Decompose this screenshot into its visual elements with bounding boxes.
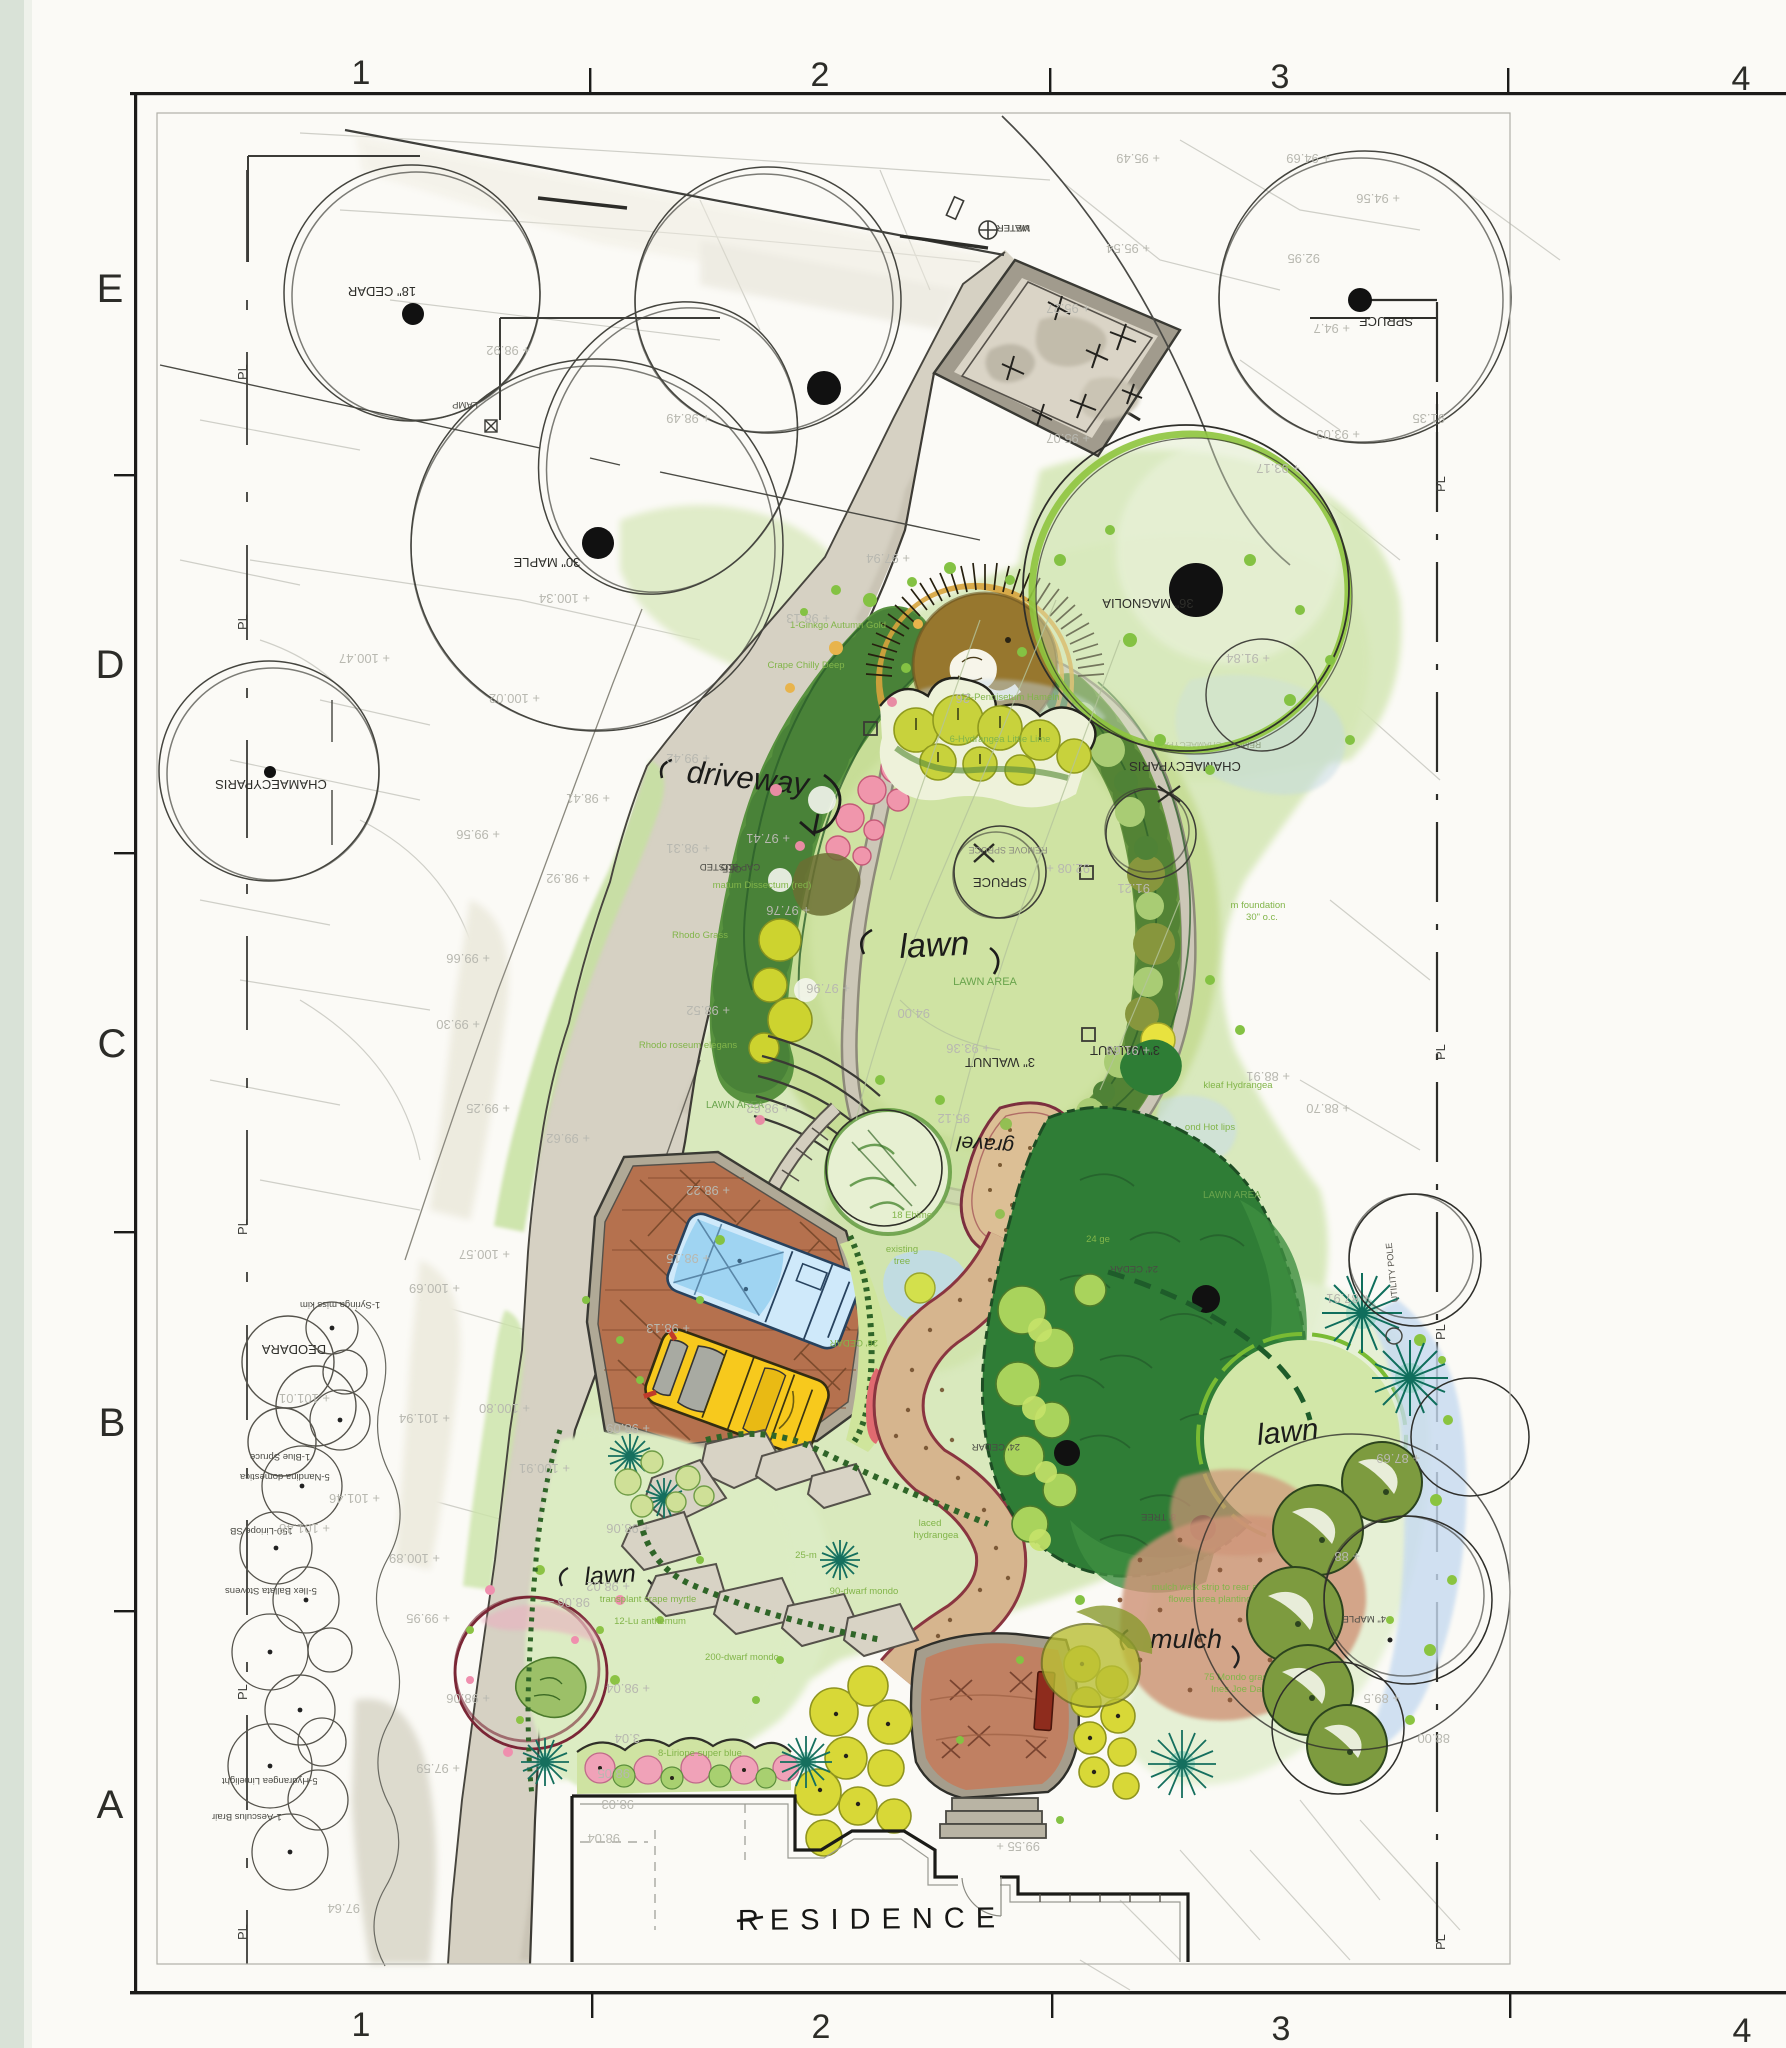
svg-text:PL: PL bbox=[1433, 1324, 1448, 1340]
svg-text:+ 98.13: + 98.13 bbox=[786, 611, 830, 626]
svg-text:1: 1 bbox=[352, 2006, 371, 2044]
svg-text:A: A bbox=[97, 1783, 124, 1827]
svg-text:LAWN AREA: LAWN AREA bbox=[1203, 1190, 1261, 1201]
svg-text:26: 26 bbox=[956, 691, 970, 706]
svg-text:Rhodo roseum elegans: Rhodo roseum elegans bbox=[639, 1040, 737, 1051]
svg-text:+ 87.91: + 87.91 bbox=[1326, 1291, 1370, 1306]
svg-text:E: E bbox=[97, 267, 124, 311]
svg-text:98.03: 98.03 bbox=[601, 1797, 634, 1812]
svg-text:3: 3 bbox=[1271, 58, 1290, 96]
svg-text:+ 101.01: + 101.01 bbox=[279, 1391, 330, 1406]
svg-text:+ 99.56: + 99.56 bbox=[456, 827, 500, 842]
svg-text:5-Ilex Ballata Stovens: 5-Ilex Ballata Stovens bbox=[225, 1585, 317, 1596]
svg-text:30" o.c.: 30" o.c. bbox=[1246, 912, 1278, 923]
svg-text:transplant crape myrtle: transplant crape myrtle bbox=[600, 1594, 697, 1605]
svg-text:1: 1 bbox=[352, 54, 371, 92]
svg-text:+ 101.46: + 101.46 bbox=[329, 1491, 380, 1506]
svg-text:C: C bbox=[98, 1022, 127, 1066]
svg-text:+ 99.42: + 99.42 bbox=[666, 751, 710, 766]
svg-text:laced: laced bbox=[919, 1518, 942, 1529]
svg-text:+ 98.04: + 98.04 bbox=[606, 1681, 650, 1696]
svg-text:2: 2 bbox=[812, 2008, 831, 2046]
svg-text:PL: PL bbox=[1433, 1934, 1448, 1950]
svg-text:+ 88: + 88 bbox=[1334, 1549, 1360, 1564]
svg-text:98.06 —: 98.06 — bbox=[541, 1595, 590, 1610]
svg-text:PL: PL bbox=[235, 614, 250, 630]
svg-text:+ 100.47: + 100.47 bbox=[339, 651, 390, 666]
svg-text:92.95: 92.95 bbox=[1287, 251, 1320, 266]
svg-text:4" MAPLE: 4" MAPLE bbox=[1342, 1613, 1386, 1624]
svg-text:8-Liriope super blue: 8-Liriope super blue bbox=[658, 1748, 742, 1759]
svg-text:+ 91.84: + 91.84 bbox=[1226, 651, 1270, 666]
svg-text:LAWN AREA: LAWN AREA bbox=[953, 976, 1017, 988]
svg-text:+ 95.27: + 95.27 bbox=[1046, 301, 1090, 316]
svg-text:+ 98.41: + 98.41 bbox=[566, 791, 610, 806]
svg-text:SPRUCE: SPRUCE bbox=[1359, 314, 1414, 329]
svg-text:99.55 +: 99.55 + bbox=[996, 1839, 1040, 1854]
svg-text:+ 97.94: + 97.94 bbox=[866, 551, 910, 566]
svg-text:+ 98.09: + 98.09 bbox=[606, 1421, 650, 1436]
svg-text:12-Pennisetum Hameln: 12-Pennisetum Hameln bbox=[960, 692, 1059, 703]
svg-text:Rhodo Grass: Rhodo Grass bbox=[672, 930, 728, 941]
svg-text:+ 100.34: + 100.34 bbox=[539, 591, 590, 606]
svg-text:+ 98.62: + 98.62 bbox=[746, 1101, 790, 1116]
svg-text:+ 98.02: + 98.02 bbox=[586, 1579, 630, 1594]
svg-text:+ 91.68: + 91.68 bbox=[1106, 1043, 1150, 1058]
svg-text:tree: tree bbox=[894, 1256, 910, 1267]
svg-text:36" MAGNOLIA: 36" MAGNOLIA bbox=[1102, 596, 1194, 611]
svg-text:+ 97.59: + 97.59 bbox=[416, 1761, 460, 1776]
svg-text:PL: PL bbox=[235, 1684, 250, 1700]
svg-text:92.08 +: 92.08 + bbox=[1046, 861, 1090, 876]
svg-text:matum Dissectum (red): matum Dissectum (red) bbox=[713, 880, 812, 891]
svg-text:+ 98.92: + 98.92 bbox=[546, 871, 590, 886]
svg-text:25-m: 25-m bbox=[795, 1550, 817, 1561]
svg-text:+ 100.89: + 100.89 bbox=[389, 1551, 440, 1566]
svg-text:PL: PL bbox=[1433, 476, 1448, 492]
svg-text:+ 88.91: + 88.91 bbox=[1246, 1069, 1290, 1084]
svg-text:D: D bbox=[96, 643, 125, 687]
svg-text:91.35: 91.35 bbox=[1412, 411, 1445, 426]
svg-text:PL: PL bbox=[235, 1219, 250, 1235]
svg-text:75 Mondo grass: 75 Mondo grass bbox=[1204, 1672, 1272, 1683]
svg-text:1-Blue Spruce: 1-Blue Spruce bbox=[250, 1451, 310, 1462]
svg-text:200-dwarf mondo: 200-dwarf mondo bbox=[705, 1652, 779, 1663]
svg-text:5-Nandina domestica: 5-Nandina domestica bbox=[239, 1471, 329, 1482]
svg-text:CHAMAECYPARIS: CHAMAECYPARIS bbox=[215, 777, 327, 792]
svg-text:+ 100.57: + 100.57 bbox=[459, 1247, 510, 1262]
svg-text:3" WALNUT: 3" WALNUT bbox=[965, 1055, 1035, 1070]
svg-text:3.04: 3.04 bbox=[615, 1731, 640, 1746]
svg-text:lawn: lawn bbox=[1255, 1413, 1320, 1452]
svg-text:18 Ehime: 18 Ehime bbox=[892, 1210, 932, 1221]
svg-text:+ 98.13: + 98.13 bbox=[646, 1321, 690, 1336]
svg-text:98.05: 98.05 bbox=[597, 1766, 630, 1781]
svg-text:RESIDENCE: RESIDENCE bbox=[738, 1902, 1007, 1937]
svg-text:CHAMAECYPARIS: CHAMAECYPARIS bbox=[1129, 759, 1241, 774]
svg-text:98.04: 98.04 bbox=[587, 1831, 620, 1846]
svg-text:+ 99.95: + 99.95 bbox=[406, 1611, 450, 1626]
svg-text:1-Aesculus Brair: 1-Aesculus Brair bbox=[212, 1811, 282, 1822]
svg-text:PL: PL bbox=[1433, 1044, 1448, 1060]
svg-text:4: 4 bbox=[1733, 2012, 1752, 2048]
svg-text:mulch: mulch bbox=[1150, 1624, 1222, 1654]
svg-text:+ 94.7: + 94.7 bbox=[1313, 321, 1350, 336]
svg-text:+ 98.15: + 98.15 bbox=[666, 1251, 710, 1266]
svg-text:2: 2 bbox=[811, 56, 830, 94]
svg-text:12-Lu anthemum: 12-Lu anthemum bbox=[614, 1616, 686, 1627]
svg-text:PL: PL bbox=[235, 364, 250, 380]
svg-text:+ 99.62: + 99.62 bbox=[546, 1131, 590, 1146]
svg-text:5-Hydrangea Limelight: 5-Hydrangea Limelight bbox=[222, 1775, 318, 1786]
svg-text:+ 101.48: + 101.48 bbox=[279, 1521, 330, 1536]
svg-text:SPRUCE: SPRUCE bbox=[973, 875, 1028, 890]
svg-text:88.00: 88.00 bbox=[1417, 1731, 1450, 1746]
svg-text:+ 100.02: + 100.02 bbox=[489, 691, 540, 706]
svg-text:+ 98.92: + 98.92 bbox=[486, 343, 530, 358]
svg-text:+ 97.76: + 97.76 bbox=[766, 903, 810, 918]
svg-text:4: 4 bbox=[1732, 60, 1751, 98]
svg-text:ond Hot lips: ond Hot lips bbox=[1185, 1122, 1235, 1133]
svg-text:existing: existing bbox=[886, 1244, 918, 1255]
svg-text:+ 89.5: + 89.5 bbox=[1363, 1691, 1400, 1706]
svg-text:+ 88.70: + 88.70 bbox=[1306, 1101, 1350, 1116]
svg-text:OFF: OFF bbox=[722, 863, 741, 874]
svg-text:+ 100.80: + 100.80 bbox=[479, 1401, 530, 1416]
svg-text:Crape Chilly Deep: Crape Chilly Deep bbox=[767, 660, 844, 671]
svg-text:94.00: 94.00 bbox=[897, 1006, 930, 1021]
svg-text:95.12: 95.12 bbox=[937, 1111, 970, 1126]
svg-text:1-Syringa miss kim: 1-Syringa miss kim bbox=[300, 1299, 380, 1310]
svg-text:+ 101.94: + 101.94 bbox=[399, 1411, 450, 1426]
svg-text:B: B bbox=[99, 1401, 126, 1445]
svg-text:+ 98.49: + 98.49 bbox=[666, 411, 710, 426]
svg-text:gravel: gravel bbox=[955, 1131, 1015, 1158]
svg-text:+ 94.69: + 94.69 bbox=[1286, 151, 1330, 166]
svg-text:+ 100.69: + 100.69 bbox=[409, 1281, 460, 1296]
svg-text:m foundation: m foundation bbox=[1231, 900, 1286, 911]
svg-text:18" CEDAR: 18" CEDAR bbox=[348, 284, 416, 299]
svg-text:24 ge: 24 ge bbox=[1086, 1234, 1110, 1245]
svg-text:+ 98.31: + 98.31 bbox=[666, 841, 710, 856]
svg-text:+ 95.49: + 95.49 bbox=[1116, 151, 1160, 166]
svg-text:+ 97.41: + 97.41 bbox=[746, 831, 790, 846]
svg-text:hydrangea: hydrangea bbox=[914, 1530, 960, 1541]
svg-text:METER: METER bbox=[997, 222, 1030, 233]
svg-text:30" MAPLE: 30" MAPLE bbox=[513, 555, 580, 570]
svg-text:+ 95.54: + 95.54 bbox=[1106, 241, 1150, 256]
svg-text:+ 97.96: + 97.96 bbox=[806, 981, 850, 996]
svg-text:+ 93.17: + 93.17 bbox=[1256, 461, 1300, 476]
svg-text:24' CEDAR: 24' CEDAR bbox=[972, 1441, 1020, 1452]
svg-text:90-dwarf mondo: 90-dwarf mondo bbox=[830, 1586, 899, 1597]
svg-text:+ 87.69: + 87.69 bbox=[1376, 1451, 1420, 1466]
svg-text:+ 93.36: + 93.36 bbox=[946, 1041, 990, 1056]
svg-text:6-Hydrangea Little Lime: 6-Hydrangea Little Lime bbox=[950, 734, 1051, 745]
svg-text:+ 98.52: + 98.52 bbox=[686, 1003, 730, 1018]
svg-text:PL: PL bbox=[235, 1924, 250, 1940]
svg-text:26' CEDAR: 26' CEDAR bbox=[830, 1337, 878, 1348]
svg-text:mulch walk strip to rear and: mulch walk strip to rear and bbox=[1152, 1582, 1268, 1593]
svg-text:3: 3 bbox=[1272, 2010, 1291, 2048]
svg-text:+ 98.06: + 98.06 bbox=[446, 1691, 490, 1706]
svg-text:+ 95.07: + 95.07 bbox=[1046, 431, 1090, 446]
svg-text:+ 98.22: + 98.22 bbox=[686, 1183, 730, 1198]
svg-text:+ 93.03: + 93.03 bbox=[1316, 427, 1360, 442]
svg-text:+ 100.91: + 100.91 bbox=[519, 1461, 570, 1476]
svg-text:+ 99.30: + 99.30 bbox=[436, 1017, 480, 1032]
svg-text:+ 94.56: + 94.56 bbox=[1356, 191, 1400, 206]
svg-text:REMOVE SPRUCE: REMOVE SPRUCE bbox=[968, 845, 1047, 855]
svg-text:91.21: 91.21 bbox=[1117, 881, 1150, 896]
svg-text:+ 99.25: + 99.25 bbox=[466, 1101, 510, 1116]
svg-text:97.64: 97.64 bbox=[327, 1901, 360, 1916]
svg-text:lawn: lawn bbox=[898, 924, 970, 966]
svg-text:flower area planting: flower area planting bbox=[1169, 1594, 1252, 1605]
svg-text:+ 98.06: + 98.06 bbox=[606, 1521, 650, 1536]
svg-text:+ 99.66: + 99.66 bbox=[446, 951, 490, 966]
